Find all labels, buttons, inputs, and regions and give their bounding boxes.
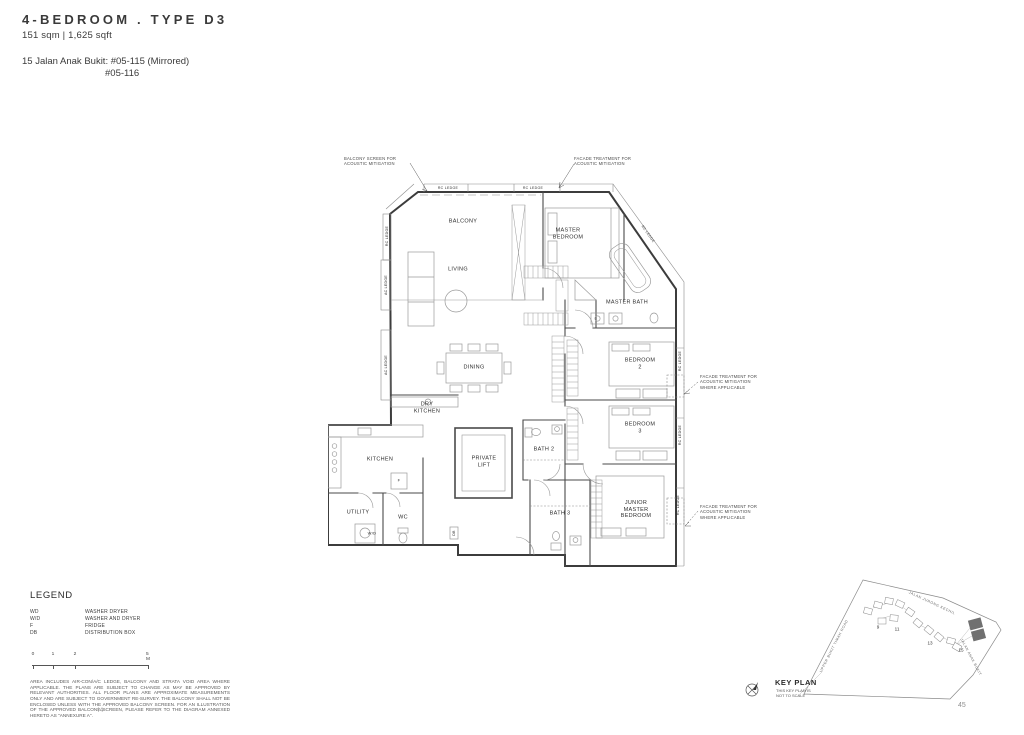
scale-bar: 0 1 2 5 M <box>30 652 190 672</box>
legend-abbr: DB <box>30 630 85 637</box>
address-line-1: 15 Jalan Anak Bukit: #05-115 (Mirrored) <box>22 56 227 68</box>
address-line-2: #05-116 <box>22 68 227 80</box>
legend-item: WDWASHER DRYER <box>30 609 260 616</box>
key-plan-numbers: 9111315 <box>738 578 1024 730</box>
legend: LEGEND WDWASHER DRYER W/DWASHER AND DRYE… <box>30 590 260 637</box>
legend-item: W/DWASHER AND DRYER <box>30 616 260 623</box>
scale-tick-label: 0 <box>32 652 35 657</box>
scale-tick-label: 1 <box>52 652 55 657</box>
legend-heading: LEGEND <box>30 590 260 601</box>
legend-abbr: WD <box>30 609 85 616</box>
unit-area: 151 sqm | 1,625 sqft <box>22 30 227 41</box>
header: 4-BEDROOM . TYPE D3 151 sqm | 1,625 sqft… <box>22 12 227 81</box>
scale-tick-mark <box>53 665 54 669</box>
disclaimer-text: AREA INCLUDES AIR-CON/A/C LEDGE, BALCONY… <box>30 679 230 718</box>
floor-plan: BALCONYMASTER BEDROOMLIVINGMASTER BATHDI… <box>328 148 758 584</box>
plan-annotations: BALCONY SCREEN FOR ACOUSTIC MITIGATIONFA… <box>328 148 758 584</box>
key-plan: KEY PLAN THIS KEY PLAN IS NOT TO SCALE J… <box>738 578 1024 730</box>
legend-item: DBDISTRIBUTION BOX <box>30 630 260 637</box>
scale-tick-mark <box>148 665 149 669</box>
building-number: 13 <box>927 641 932 646</box>
plan-annotation: FACADE TREATMENT FOR ACOUSTIC MITIGATION <box>574 156 652 167</box>
plan-annotation: BALCONY SCREEN FOR ACOUSTIC MITIGATION <box>344 156 414 167</box>
page-title: 4-BEDROOM . TYPE D3 <box>22 12 227 27</box>
plan-annotation: FACADE TREATMENT FOR ACOUSTIC MITIGATION… <box>700 374 762 390</box>
legend-abbr: F <box>30 623 85 630</box>
scale-tick-label: 5 M <box>146 652 150 662</box>
legend-label: WASHER AND DRYER <box>85 616 140 622</box>
unit-address: 15 Jalan Anak Bukit: #05-115 (Mirrored) … <box>22 56 227 81</box>
scale-tick-mark <box>75 665 76 669</box>
legend-item: FFRIDGE <box>30 623 260 630</box>
legend-abbr: W/D <box>30 616 85 623</box>
page-number-left: 44 <box>96 707 103 714</box>
plan-annotation: FACADE TREATMENT FOR ACOUSTIC MITIGATION… <box>700 504 762 520</box>
scale-bar-line <box>32 665 149 666</box>
legend-rows: WDWASHER DRYER W/DWASHER AND DRYER FFRID… <box>30 609 260 637</box>
building-number: 15 <box>958 648 963 653</box>
legend-label: DISTRIBUTION BOX <box>85 630 135 636</box>
scale-tick-mark <box>33 665 34 669</box>
scale-tick-label: 2 <box>74 652 77 657</box>
legend-label: FRIDGE <box>85 623 105 629</box>
building-number: 11 <box>895 627 900 632</box>
building-number: 9 <box>877 625 880 630</box>
legend-label: WASHER DRYER <box>85 609 128 615</box>
